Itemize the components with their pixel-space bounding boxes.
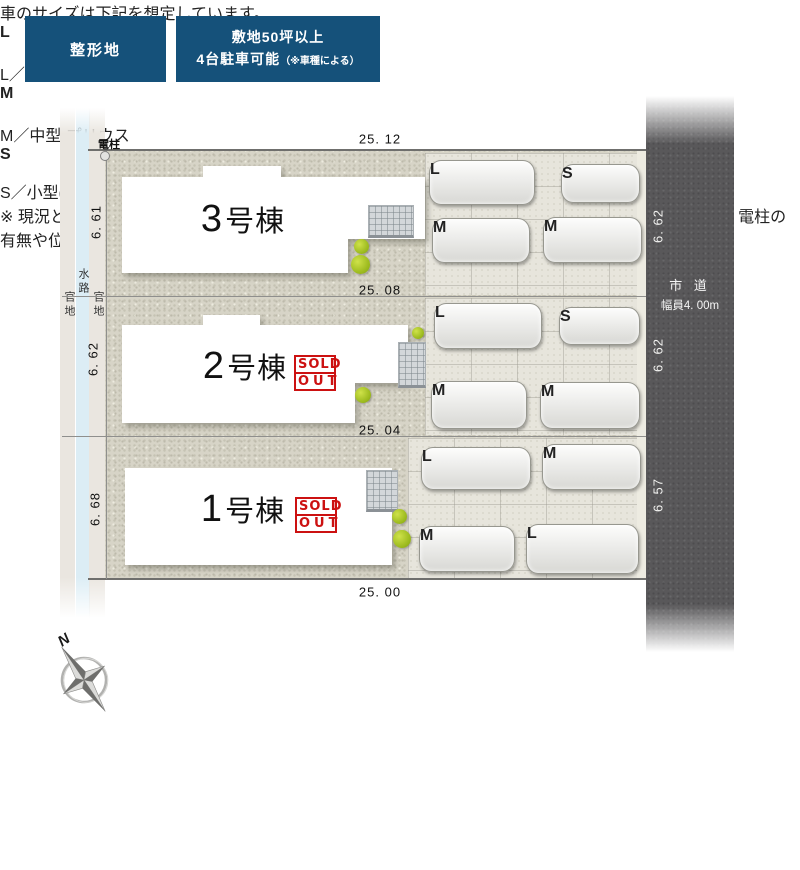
utility-pole-label: 電柱	[98, 136, 120, 152]
dim-left-row3: 6. 68	[88, 492, 103, 526]
legend-size-medium: M／中型	[0, 128, 61, 145]
boundary-line-bottom	[88, 578, 646, 580]
bush	[355, 387, 371, 403]
car-size-label: M	[544, 218, 557, 235]
dim-right-row3: 6. 57	[651, 478, 666, 512]
car-windows	[575, 168, 630, 198]
car-size-label: M	[420, 527, 433, 544]
utility-pole-icon	[100, 151, 110, 161]
sold-out-line1: SOLD	[294, 355, 336, 374]
compass-north-label: N	[55, 631, 74, 650]
car-windows	[546, 529, 626, 568]
car-size-label: L	[435, 304, 445, 321]
car-windows	[558, 387, 629, 424]
car-windows	[453, 308, 529, 344]
building-3-name: 3 号棟	[168, 200, 318, 252]
dim-mid1: 25. 08	[359, 283, 401, 298]
parked-car: M	[540, 382, 640, 429]
boundary-line-left	[106, 151, 107, 579]
city-road	[646, 96, 734, 652]
waterway-label: 水路	[75, 268, 91, 296]
compass: N	[46, 631, 136, 726]
legend-car-small-icon: S	[0, 146, 60, 179]
car-size-label: S	[560, 308, 571, 325]
sold-out-stamp-building-1: SOLD OUT	[295, 497, 337, 533]
badge-lot-size-line2: 4台駐車可能（※車種による）	[196, 48, 359, 73]
parked-car: M	[543, 217, 642, 263]
parked-car: L	[434, 303, 542, 349]
car-windows	[573, 311, 630, 341]
road-name: 市 道 幅員4. 00m	[646, 275, 734, 313]
car-windows	[449, 223, 518, 258]
parked-car: M	[431, 381, 527, 429]
car-size-label: M	[433, 219, 446, 236]
building-1-suffix: 号棟	[225, 498, 285, 527]
parked-car: L	[526, 524, 639, 574]
road-name-text: 市 道	[646, 275, 734, 294]
bush	[392, 509, 407, 524]
parked-car: M	[432, 218, 530, 263]
sold-out-stamp-building-2: SOLD OUT	[294, 355, 336, 391]
bush	[351, 255, 370, 274]
building-2-balcony	[398, 342, 426, 388]
building-3-balcony	[368, 205, 414, 238]
building-3-suffix: 号棟	[225, 208, 285, 237]
legend-car-label: M	[0, 85, 13, 102]
public-land-strip-left	[60, 108, 75, 618]
dim-bottom: 25. 00	[359, 585, 401, 600]
sold-out-line1: SOLD	[295, 497, 337, 516]
building-1-balcony	[366, 470, 398, 512]
dim-mid2: 25. 04	[359, 423, 401, 438]
building-3-number: 3	[201, 200, 222, 238]
car-windows	[559, 449, 629, 485]
parked-car: S	[561, 164, 640, 203]
badge-lot-size-line1: 敷地50坪以上	[232, 26, 325, 48]
sold-out-line2: OUT	[294, 372, 336, 391]
badge-lot-size-note: （※車種による）	[280, 56, 359, 67]
parked-car: L	[429, 160, 535, 205]
parked-car: M	[542, 444, 641, 490]
legend-car-label: L	[0, 24, 10, 41]
road-width-text: 幅員4. 00m	[646, 297, 734, 313]
dim-right-row2: 6. 62	[651, 338, 666, 372]
car-windows	[448, 165, 523, 200]
boundary-line-top	[88, 149, 646, 151]
building-2-suffix: 号棟	[227, 355, 287, 384]
boundary-line-row1	[62, 296, 646, 297]
car-windows	[448, 386, 516, 424]
badge-lot-size: 敷地50坪以上 4台駐車可能（※車種による）	[176, 16, 380, 82]
car-size-label: M	[432, 382, 445, 399]
dim-left-row1: 6. 61	[89, 205, 104, 239]
bush	[393, 530, 411, 548]
legend-car-label: S	[0, 146, 11, 163]
parked-car: L	[421, 447, 531, 490]
site-plan-page: { "header": { "badge_shape": "整形地", "bad…	[0, 0, 800, 870]
car-windows	[560, 222, 630, 258]
car-size-label: L	[422, 448, 432, 465]
parked-car: M	[419, 526, 515, 572]
dim-right-row1: 6. 62	[651, 209, 666, 243]
road-curb	[637, 151, 646, 579]
badge-lot-size-line2-main: 4台駐車可能	[196, 51, 280, 67]
car-windows	[436, 531, 504, 567]
badge-shaped-lot-label: 整形地	[70, 39, 121, 60]
car-size-label: S	[562, 165, 573, 182]
building-1-number: 1	[201, 490, 222, 528]
boundary-line-row2	[62, 436, 646, 437]
bush	[412, 327, 424, 339]
building-2-number: 2	[203, 347, 224, 385]
car-windows	[440, 452, 518, 486]
car-size-label: L	[527, 525, 537, 542]
dim-left-row2: 6. 62	[86, 342, 101, 376]
compass-rose-icon: N	[46, 631, 136, 726]
car-size-label: M	[543, 445, 556, 462]
sold-out-line2: OUT	[295, 514, 337, 533]
badge-shaped-lot: 整形地	[25, 16, 166, 82]
dim-top: 25. 12	[359, 132, 401, 147]
car-size-label: L	[430, 161, 440, 178]
car-size-label: M	[541, 383, 554, 400]
parked-car: S	[559, 307, 640, 345]
bush	[354, 239, 369, 254]
